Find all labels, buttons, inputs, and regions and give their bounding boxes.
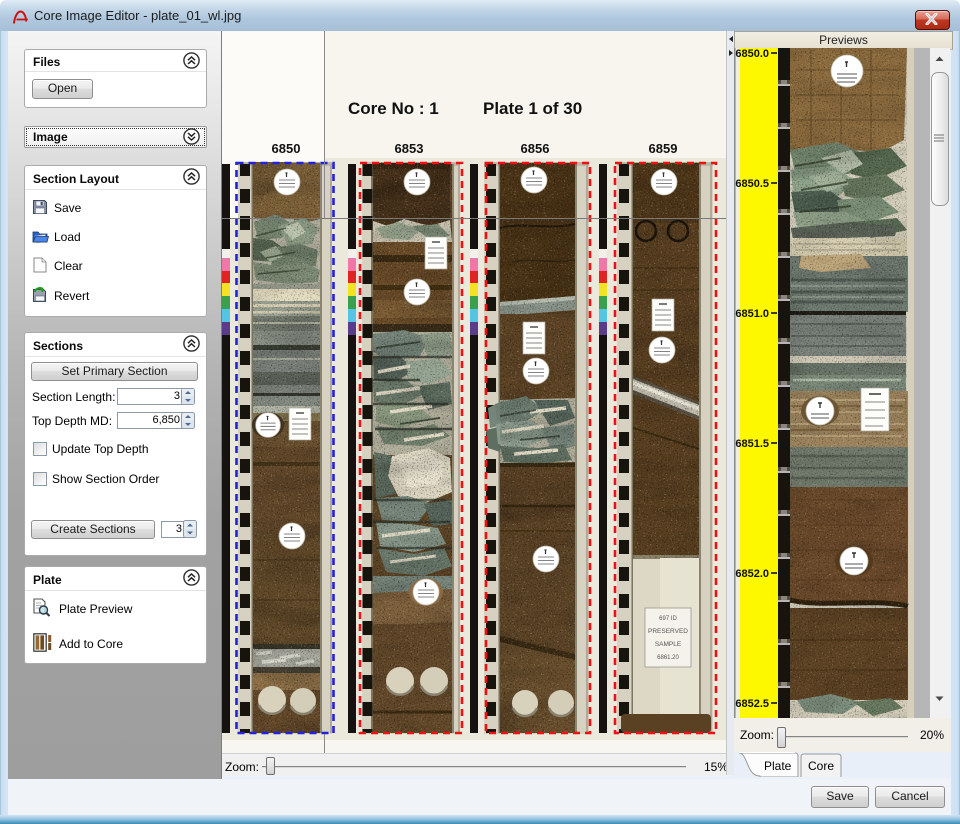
- svg-text:PRESERVED: PRESERVED: [648, 628, 688, 635]
- svg-text:697 ID: 697 ID: [659, 616, 677, 622]
- svg-text:6852.5: 6852.5: [735, 698, 769, 710]
- svg-text:6859: 6859: [649, 141, 678, 156]
- svg-text:SAMPLE: SAMPLE: [655, 641, 682, 648]
- svg-text:6856: 6856: [521, 141, 550, 156]
- svg-text:6850.0: 6850.0: [735, 48, 769, 60]
- svg-text:6851.5: 6851.5: [735, 438, 769, 450]
- svg-text:6852.0: 6852.0: [735, 568, 769, 580]
- svg-text:6850.5: 6850.5: [735, 178, 769, 190]
- svg-text:6850: 6850: [272, 141, 301, 156]
- svg-text:Plate 1 of 30: Plate 1 of 30: [483, 99, 582, 118]
- svg-text:6853: 6853: [395, 141, 424, 156]
- svg-text:Core No : 1: Core No : 1: [348, 99, 439, 118]
- svg-text:6851.0: 6851.0: [735, 308, 769, 320]
- svg-text:6861.20: 6861.20: [657, 655, 679, 661]
